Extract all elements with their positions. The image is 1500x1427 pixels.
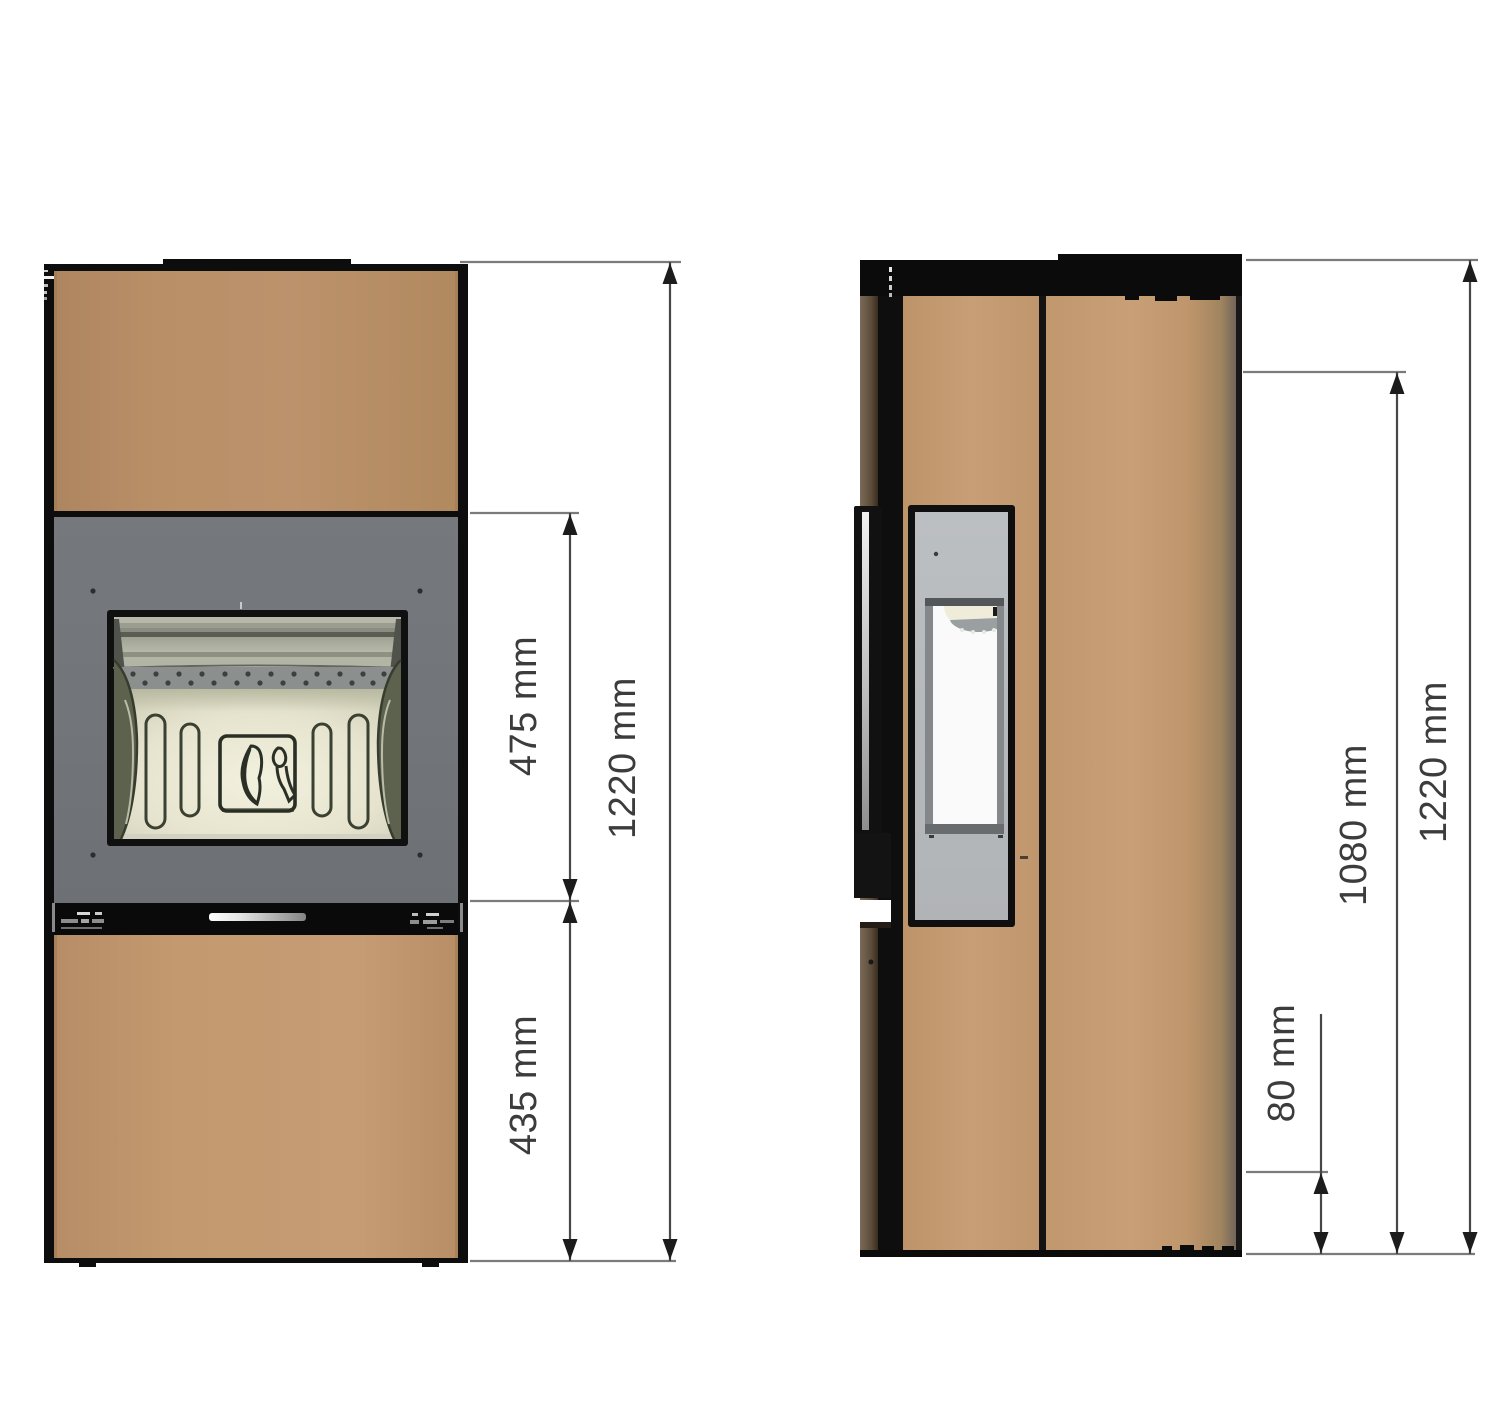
svg-text:435 mm: 435 mm [503, 1015, 545, 1155]
svg-text:1220 mm: 1220 mm [602, 677, 644, 839]
svg-text:475 mm: 475 mm [503, 636, 545, 776]
svg-text:1080 mm: 1080 mm [1333, 744, 1375, 906]
svg-text:80 mm: 80 mm [1261, 1004, 1303, 1123]
svg-text:1220 mm: 1220 mm [1413, 681, 1455, 843]
